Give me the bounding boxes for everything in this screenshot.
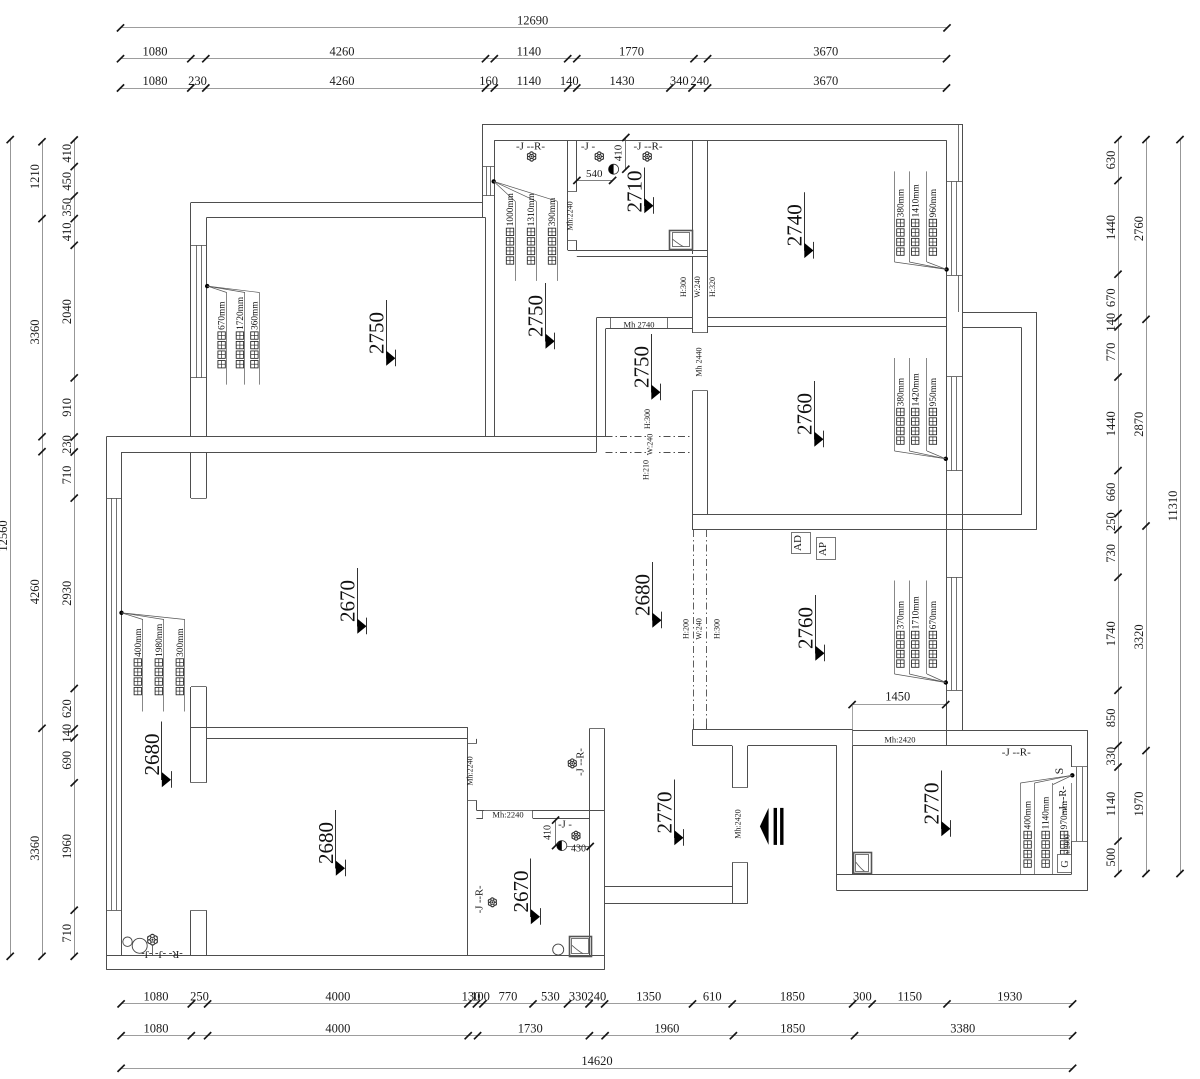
svg-text:330: 330 <box>569 990 588 1004</box>
svg-text:100: 100 <box>471 990 490 1004</box>
svg-text:2680: 2680 <box>140 734 164 776</box>
svg-text:250: 250 <box>1104 512 1118 531</box>
svg-text:360mm: 360mm <box>250 301 260 330</box>
svg-text:G: G <box>1060 860 1071 867</box>
svg-text:12560: 12560 <box>0 520 10 551</box>
svg-text:-J --R-: -J --R- <box>1058 786 1069 814</box>
svg-text:350: 350 <box>60 198 74 217</box>
svg-text:2740: 2740 <box>783 204 807 246</box>
svg-text:1850: 1850 <box>780 990 805 1004</box>
svg-text:1440: 1440 <box>1104 411 1118 436</box>
svg-text:3360: 3360 <box>28 320 42 345</box>
svg-text:3670: 3670 <box>813 45 838 59</box>
svg-text:4260: 4260 <box>28 579 42 604</box>
svg-text:370mm: 370mm <box>897 600 907 629</box>
svg-text:240: 240 <box>690 74 709 88</box>
svg-text:1140: 1140 <box>517 45 542 59</box>
svg-text:380mm: 380mm <box>897 188 907 217</box>
svg-text:340: 340 <box>670 74 689 88</box>
svg-text:630: 630 <box>1104 151 1118 170</box>
svg-text:2040: 2040 <box>60 299 74 324</box>
svg-text:330: 330 <box>1104 747 1118 766</box>
svg-text:770: 770 <box>1104 343 1118 362</box>
svg-text:Mh:2420: Mh:2420 <box>884 734 915 744</box>
svg-text:140: 140 <box>560 74 579 88</box>
svg-text:690: 690 <box>60 751 74 770</box>
svg-text:12690: 12690 <box>517 14 548 28</box>
svg-text:660: 660 <box>1104 483 1118 502</box>
svg-text:11310: 11310 <box>1166 491 1180 522</box>
svg-text:-J --R-: -J --R- <box>516 141 545 153</box>
svg-text:1960: 1960 <box>654 1022 679 1036</box>
svg-text:160: 160 <box>479 74 498 88</box>
svg-text:-J --R-: -J --R- <box>633 141 662 153</box>
svg-text:1730: 1730 <box>518 1022 543 1036</box>
svg-text:540: 540 <box>586 168 603 180</box>
svg-text:140: 140 <box>60 724 74 743</box>
svg-text:1080: 1080 <box>144 1022 169 1036</box>
svg-text:1310mm: 1310mm <box>527 192 537 226</box>
svg-text:1850: 1850 <box>780 1022 805 1036</box>
svg-text:240: 240 <box>588 990 607 1004</box>
svg-text:400mm: 400mm <box>1024 800 1034 829</box>
svg-text:950mm: 950mm <box>929 377 939 406</box>
svg-text:400mm: 400mm <box>134 628 144 657</box>
svg-text:-J --R-: -J --R- <box>474 885 485 913</box>
svg-text:W:240: W:240 <box>693 276 702 297</box>
svg-text:H:300: H:300 <box>643 409 652 429</box>
svg-text:Mh:2420: Mh:2420 <box>733 809 742 838</box>
svg-text:2760: 2760 <box>794 607 818 649</box>
svg-text:3670: 3670 <box>813 74 838 88</box>
svg-text:4260: 4260 <box>330 74 355 88</box>
svg-text:2770: 2770 <box>920 783 944 825</box>
svg-text:1140mm: 1140mm <box>1042 796 1052 829</box>
svg-text:960mm: 960mm <box>929 188 939 217</box>
svg-text:2670: 2670 <box>336 580 360 622</box>
svg-text:2680: 2680 <box>314 822 338 864</box>
svg-text:1080: 1080 <box>143 45 168 59</box>
svg-text:610: 610 <box>703 990 722 1004</box>
svg-text:1410mm: 1410mm <box>911 183 921 217</box>
svg-text:4260: 4260 <box>330 45 355 59</box>
svg-text:2760: 2760 <box>1132 216 1146 241</box>
svg-text:4000: 4000 <box>325 1022 350 1036</box>
svg-text:730: 730 <box>1104 544 1118 563</box>
svg-text:2750: 2750 <box>524 295 548 337</box>
svg-text:3320: 3320 <box>1132 624 1146 649</box>
svg-text:H:320: H:320 <box>708 277 717 297</box>
svg-text:670mm: 670mm <box>929 600 939 629</box>
svg-text:380mm: 380mm <box>897 377 907 406</box>
svg-text:Mh 2740: Mh 2740 <box>624 320 655 330</box>
svg-text:1150: 1150 <box>898 990 923 1004</box>
svg-text:H:200: H:200 <box>681 619 690 639</box>
svg-text:H:210: H:210 <box>641 460 650 480</box>
svg-text:230: 230 <box>60 435 74 454</box>
svg-text:1000mm: 1000mm <box>506 192 516 226</box>
svg-text:410: 410 <box>543 825 554 840</box>
svg-text:-J -: -J - <box>581 141 596 153</box>
svg-text:-J --R-: -J --R- <box>576 748 587 776</box>
svg-text:-J --R-: -J --R- <box>1002 747 1031 759</box>
svg-text:1930: 1930 <box>997 990 1022 1004</box>
svg-text:1450: 1450 <box>885 690 910 704</box>
svg-text:1970: 1970 <box>1132 792 1146 817</box>
svg-text:1140: 1140 <box>1104 792 1118 817</box>
svg-text:1420mm: 1420mm <box>911 372 921 406</box>
svg-text:410: 410 <box>613 144 625 161</box>
svg-text:3380: 3380 <box>950 1022 975 1036</box>
svg-text:2710: 2710 <box>623 171 647 213</box>
svg-text:AD: AD <box>792 535 804 551</box>
svg-text:770: 770 <box>499 990 518 1004</box>
svg-text:2670: 2670 <box>509 871 533 913</box>
svg-text:H:300: H:300 <box>679 277 688 297</box>
svg-text:H:300: H:300 <box>713 619 722 639</box>
svg-text:W:240: W:240 <box>645 434 654 455</box>
svg-text:1440: 1440 <box>1104 215 1118 240</box>
svg-text:850: 850 <box>1104 709 1118 728</box>
svg-text:450: 450 <box>60 172 74 191</box>
svg-text:S: S <box>1052 768 1066 775</box>
svg-text:1960: 1960 <box>60 834 74 859</box>
svg-text:910: 910 <box>60 398 74 417</box>
svg-text:2750: 2750 <box>630 346 654 388</box>
svg-text:2680: 2680 <box>631 574 655 616</box>
svg-text:2770: 2770 <box>653 792 677 834</box>
svg-text:250: 250 <box>190 990 209 1004</box>
svg-text:1770: 1770 <box>619 45 644 59</box>
svg-text:2750: 2750 <box>364 312 388 354</box>
svg-text:4000: 4000 <box>325 990 350 1004</box>
svg-text:1740: 1740 <box>1104 621 1118 646</box>
svg-text:Mh:2240: Mh:2240 <box>466 756 475 785</box>
svg-text:300: 300 <box>853 990 872 1004</box>
svg-text:620: 620 <box>60 699 74 718</box>
svg-text:1980mm: 1980mm <box>155 623 165 657</box>
svg-text:300mm: 300mm <box>176 628 186 657</box>
svg-text:390mm: 390mm <box>548 197 558 226</box>
svg-text:1080: 1080 <box>144 990 169 1004</box>
svg-text:710: 710 <box>60 924 74 943</box>
svg-text:710: 710 <box>60 466 74 485</box>
svg-text:Mh:2240: Mh:2240 <box>492 809 523 819</box>
svg-text:1210: 1210 <box>28 164 42 189</box>
svg-text:-R- -J- -J-: -R- -J- -J- <box>141 948 183 959</box>
svg-text:230: 230 <box>188 74 207 88</box>
svg-text:430: 430 <box>571 844 586 855</box>
svg-text:-J -: -J - <box>558 820 572 831</box>
svg-text:W:240: W:240 <box>695 618 704 639</box>
svg-text:140: 140 <box>1104 313 1118 332</box>
svg-text:3360: 3360 <box>28 836 42 861</box>
svg-text:Mh 2440: Mh 2440 <box>694 347 703 376</box>
svg-text:1080: 1080 <box>143 74 168 88</box>
svg-text:500: 500 <box>1104 848 1118 867</box>
svg-text:14620: 14620 <box>581 1054 612 1068</box>
svg-text:530: 530 <box>541 990 560 1004</box>
svg-text:1710mm: 1710mm <box>911 595 921 629</box>
svg-text:670: 670 <box>1104 288 1118 307</box>
svg-text:1350: 1350 <box>636 990 661 1004</box>
svg-text:1140: 1140 <box>517 74 542 88</box>
svg-text:2870: 2870 <box>1132 412 1146 437</box>
svg-text:Mh:2240: Mh:2240 <box>566 201 575 230</box>
svg-text:AP: AP <box>817 542 829 556</box>
svg-text:670mm: 670mm <box>218 301 228 330</box>
svg-text:2930: 2930 <box>60 581 74 606</box>
svg-text:2760: 2760 <box>793 393 817 435</box>
svg-text:1720mm: 1720mm <box>236 296 246 330</box>
svg-text:410: 410 <box>60 223 74 242</box>
svg-text:410: 410 <box>60 144 74 163</box>
svg-text:1430: 1430 <box>610 74 635 88</box>
